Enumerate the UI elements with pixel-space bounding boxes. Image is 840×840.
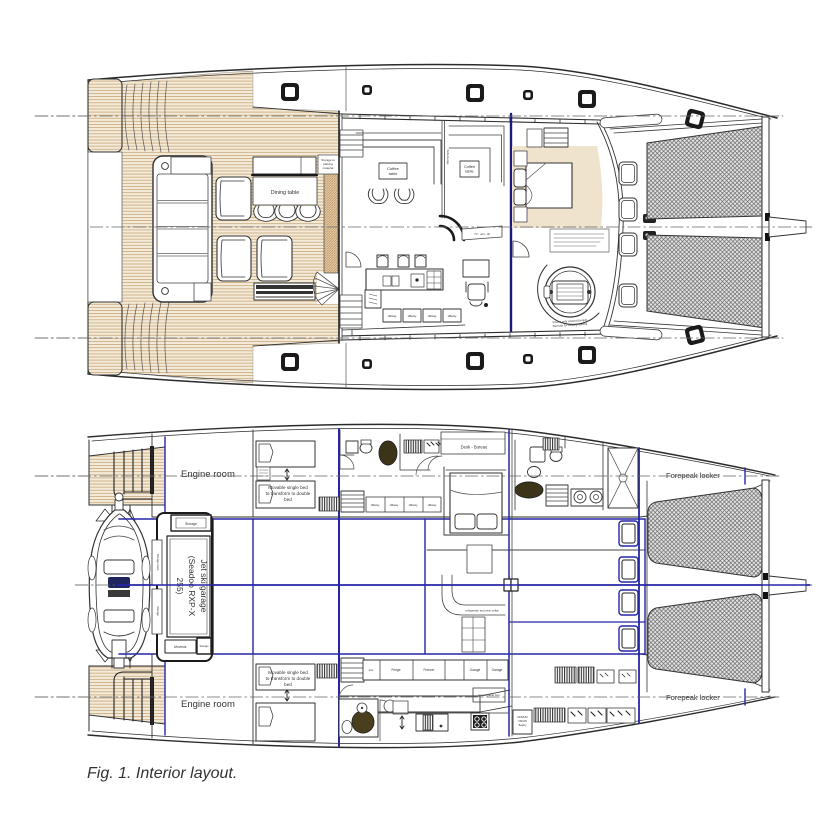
svg-text:VISION: VISION bbox=[518, 719, 527, 723]
svg-text:xBway: xBway bbox=[428, 314, 437, 318]
svg-text:Movable single bed: Movable single bed bbox=[268, 485, 308, 490]
svg-text:table: table bbox=[389, 171, 398, 176]
svg-text:Movable single bed: Movable single bed bbox=[268, 670, 308, 675]
svg-text:Garage: Garage bbox=[492, 668, 503, 672]
svg-text:xBway: xBway bbox=[428, 503, 437, 507]
svg-text:Storage: Storage bbox=[185, 522, 197, 526]
svg-text:bed: bed bbox=[284, 497, 292, 502]
svg-text:xBway: xBway bbox=[408, 314, 417, 318]
svg-text:Sofa lounge: Sofa lounge bbox=[446, 150, 450, 165]
svg-text:two buyable box: two buyable box bbox=[478, 693, 500, 697]
svg-text:xBway: xBway bbox=[371, 503, 380, 507]
svg-text:Bosley: Bosley bbox=[519, 723, 527, 727]
svg-text:table: table bbox=[465, 170, 473, 174]
svg-text:xBway: xBway bbox=[388, 314, 397, 318]
svg-text:Coffee: Coffee bbox=[464, 165, 475, 169]
svg-text:Fig. 1. Interior layout.: Fig. 1. Interior layout. bbox=[87, 765, 237, 782]
svg-text:Storage: Storage bbox=[156, 606, 160, 616]
svg-text:Garage: Garage bbox=[470, 668, 481, 672]
svg-text:refrigerator and wine cellar: refrigerator and wine cellar bbox=[465, 609, 498, 613]
svg-text:Fridge: Fridge bbox=[391, 668, 400, 672]
svg-text:stor: stor bbox=[369, 668, 374, 672]
svg-text:to transform to double: to transform to double bbox=[266, 491, 311, 496]
svg-text:TV - unit - lift: TV - unit - lift bbox=[474, 232, 490, 236]
svg-text:Storage: Storage bbox=[199, 644, 209, 648]
svg-text:Dining table: Dining table bbox=[271, 190, 299, 196]
svg-text:Storage tools: Storage tools bbox=[156, 554, 160, 571]
svg-text:xBway: xBway bbox=[409, 503, 418, 507]
svg-text:Engine room: Engine room bbox=[181, 469, 235, 480]
svg-text:255): 255) bbox=[175, 577, 185, 594]
svg-text:to transform to double: to transform to double bbox=[266, 676, 311, 681]
svg-text:xBway: xBway bbox=[448, 314, 457, 318]
svg-text:Lifevests: Lifevests bbox=[174, 645, 187, 649]
svg-text:xBway: xBway bbox=[390, 503, 399, 507]
svg-text:material: material bbox=[323, 166, 334, 170]
svg-text:(Seadoo RXP-X: (Seadoo RXP-X bbox=[187, 556, 197, 617]
svg-text:Engine room: Engine room bbox=[181, 699, 235, 710]
svg-text:MODUM: MODUM bbox=[517, 715, 527, 719]
svg-text:Desk - Bureau: Desk - Bureau bbox=[461, 445, 488, 450]
svg-text:bed: bed bbox=[284, 682, 292, 687]
svg-text:Forepeak locker: Forepeak locker bbox=[666, 693, 720, 702]
svg-text:Freezer: Freezer bbox=[424, 668, 436, 672]
svg-text:Forepeak locker: Forepeak locker bbox=[666, 471, 720, 480]
svg-text:Jet ski garage: Jet ski garage bbox=[199, 560, 209, 613]
